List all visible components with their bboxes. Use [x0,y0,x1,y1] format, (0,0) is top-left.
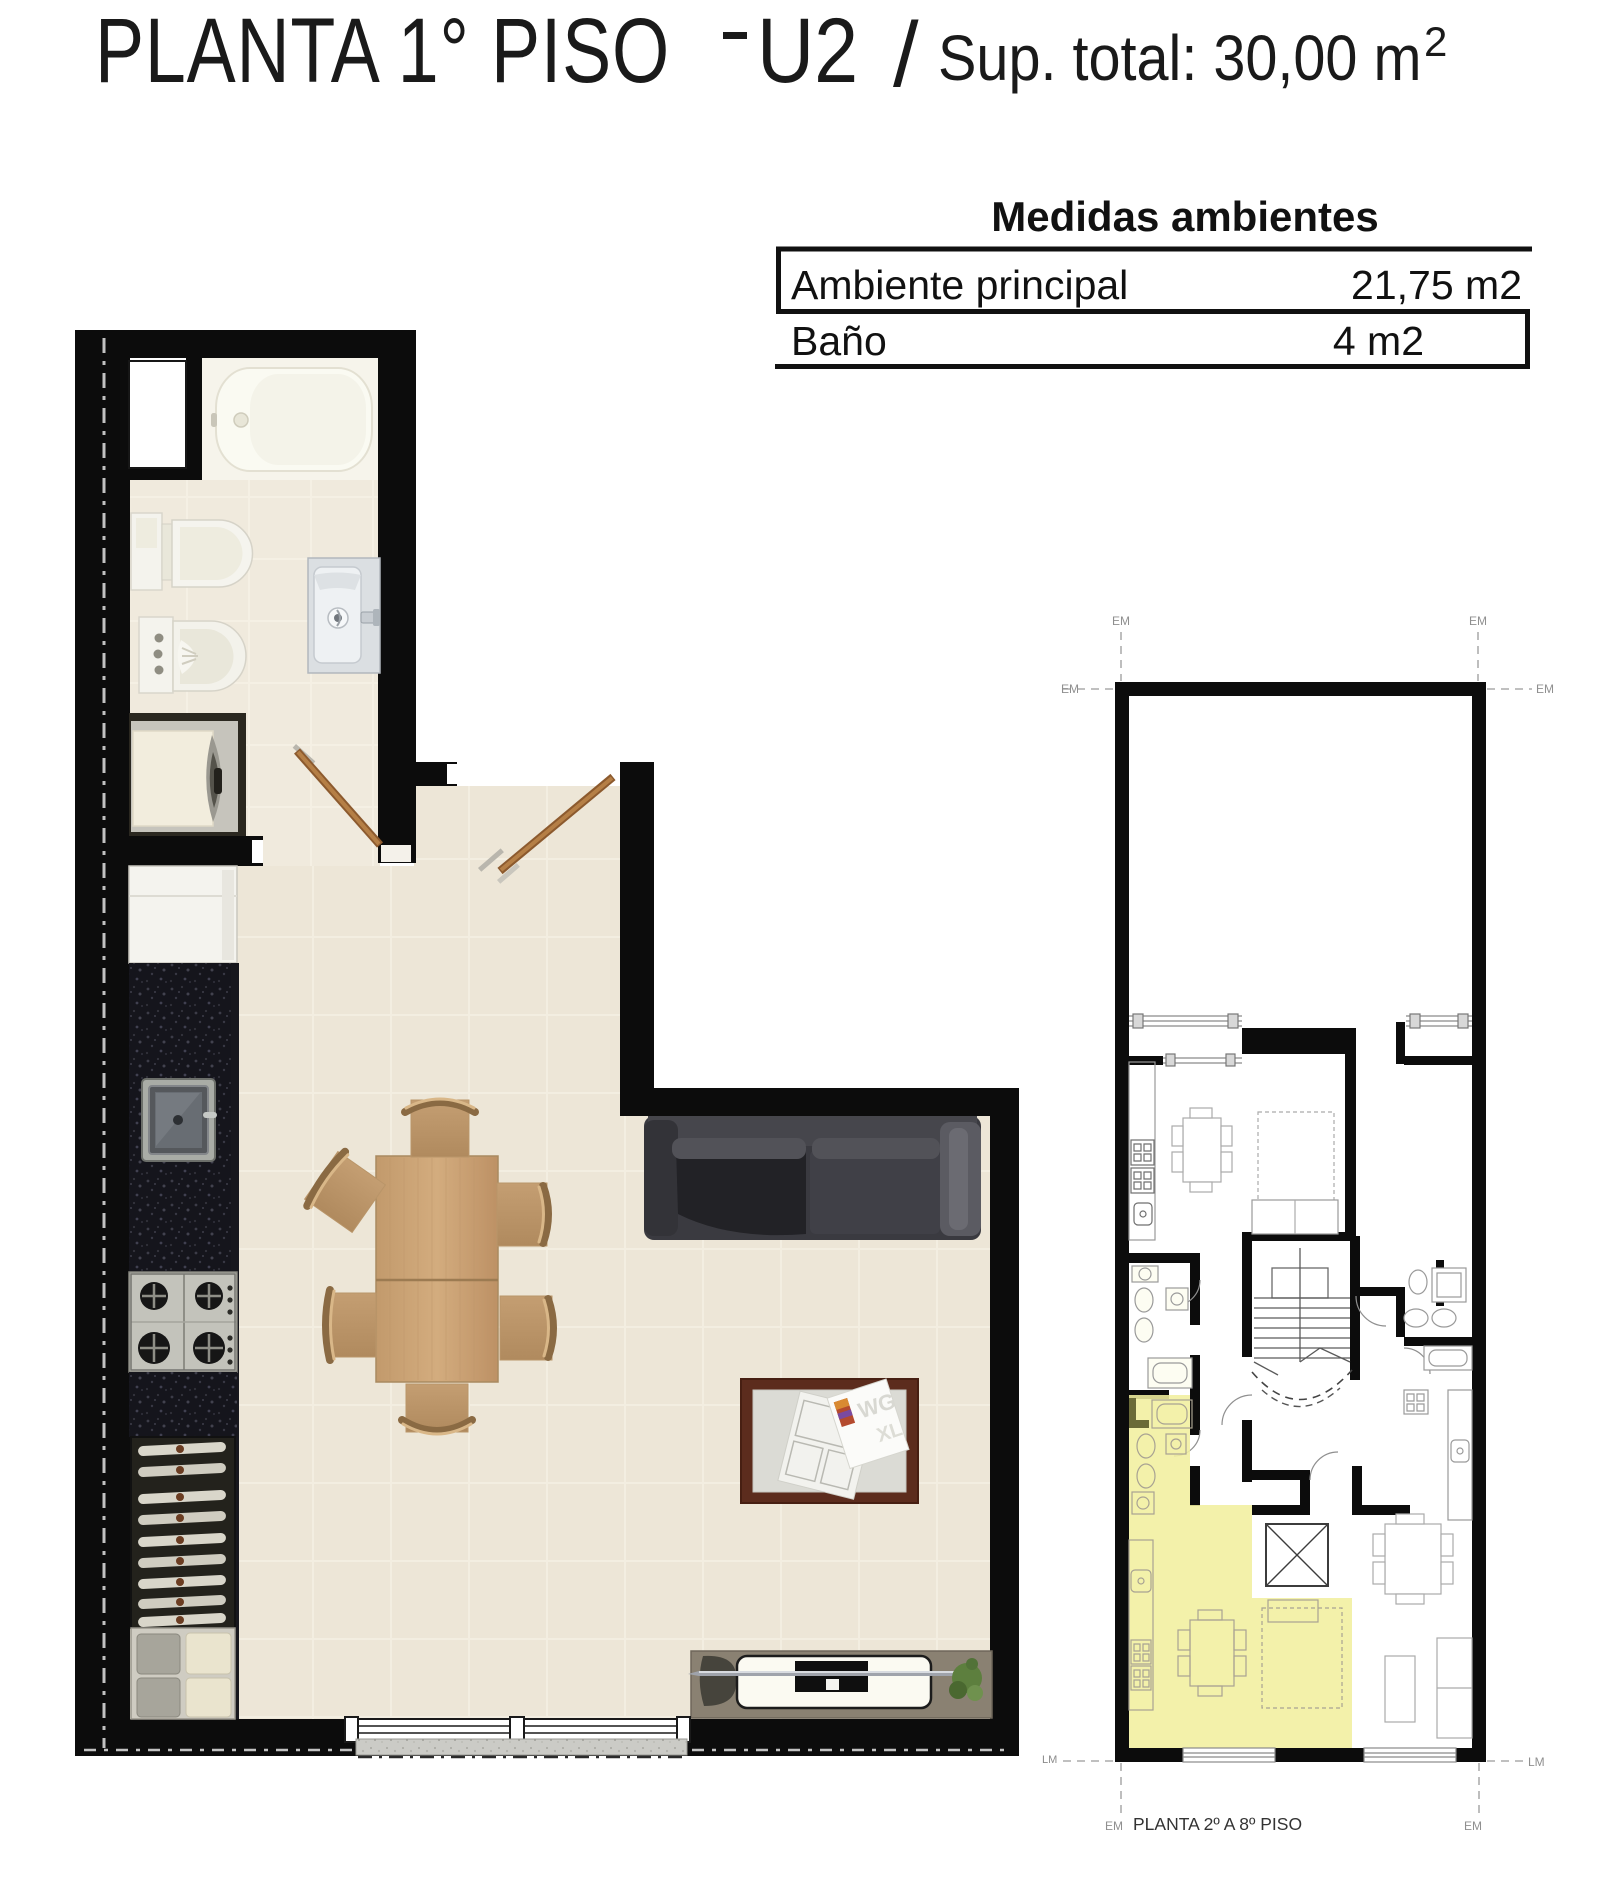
svg-text:U2: U2 [757,0,858,102]
svg-text:/: / [893,4,919,106]
svg-text:PLANTA 1° PISO: PLANTA 1° PISO [95,0,670,102]
svg-text:Ambiente principal: Ambiente principal [791,262,1128,308]
svg-text:Sup. total: 30,00 m: Sup. total: 30,00 m [938,22,1421,93]
svg-text:EM: EM [1469,614,1487,628]
svg-text:EM: EM [1536,682,1554,696]
svg-text:EM: EM [1061,682,1079,696]
svg-text:Medidas ambientes: Medidas ambientes [991,193,1378,240]
svg-text:PLANTA 2º A 8º PISO: PLANTA 2º A 8º PISO [1133,1814,1302,1834]
svg-text:LM: LM [1528,1755,1545,1769]
svg-text:EM: EM [1464,1819,1482,1833]
svg-text:2: 2 [1424,18,1447,65]
svg-text:LM: LM [1042,1754,1057,1766]
svg-text:EM: EM [1105,1819,1123,1833]
svg-text:Baño: Baño [791,318,887,364]
svg-text:EM: EM [1112,614,1130,628]
svg-text:4 m2: 4 m2 [1333,318,1424,364]
svg-text:21,75 m2: 21,75 m2 [1351,262,1522,308]
